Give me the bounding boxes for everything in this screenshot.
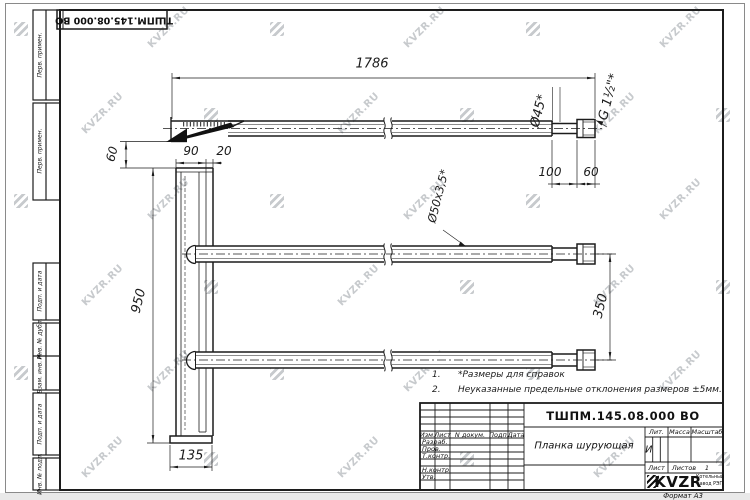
title-lit-value: И bbox=[645, 444, 652, 455]
side-label-inv-podl: Инв. № подл. bbox=[37, 453, 44, 494]
title-col-data: Дата bbox=[508, 431, 525, 439]
side-label-perv-primen-2: Перв. примен. bbox=[37, 128, 44, 173]
drawing-canvas bbox=[0, 0, 750, 500]
note-1-text: *Размеры для справок bbox=[458, 370, 565, 380]
dim-20: 20 bbox=[216, 144, 231, 158]
title-row-utv: Утв. bbox=[422, 473, 436, 481]
drawing-sheet: KVZR.RUKVZR.RUKVZR.RUKVZR.RUKVZR.RUKVZR.… bbox=[0, 0, 750, 500]
side-label-podp-data-2: Подп. и дата bbox=[37, 404, 44, 445]
title-row-tkontr: Т.контр. bbox=[422, 452, 450, 460]
title-hdr-massa: Масса bbox=[669, 428, 690, 436]
title-col-podp: Подп. bbox=[489, 431, 509, 439]
side-label-perv-primen: Перв. примен. bbox=[37, 32, 44, 77]
title-part-name: Планка шурующая bbox=[534, 441, 633, 452]
front-view bbox=[170, 168, 612, 443]
title-hdr-masshtab: Масштаб bbox=[692, 428, 723, 436]
title-sheets-label: Листов bbox=[672, 464, 696, 472]
side-label-podp-data: Подп. и дата bbox=[37, 271, 44, 312]
dim-60-right: 60 bbox=[583, 165, 598, 179]
title-hdr-lit: Лит. bbox=[649, 428, 664, 436]
org-name-line1: Котельный bbox=[696, 475, 724, 481]
dim-135: 135 bbox=[179, 449, 204, 464]
title-sheets-value: 1 bbox=[705, 464, 709, 472]
kvzr-logo-text: KVZR bbox=[654, 473, 702, 491]
note-1-number: 1. bbox=[432, 370, 441, 380]
note-2-text: Неуказанные предельные отклонения размер… bbox=[458, 385, 722, 395]
note-2-number: 2. bbox=[432, 385, 441, 395]
format-note: Формат А3 bbox=[663, 492, 703, 500]
dim-90: 90 bbox=[183, 144, 198, 158]
title-doc-number: ТШПМ.145.08.000 ВО bbox=[546, 409, 700, 423]
corner-stamp-number: ТШПМ.145.08.000 ВО bbox=[55, 14, 173, 25]
title-sheet-label: Лист bbox=[648, 464, 664, 472]
title-col-doc: N докум. bbox=[455, 431, 485, 439]
org-name-line2: завод РЭП bbox=[697, 481, 723, 487]
side-label-vzam-inv: Взам. инв. № bbox=[37, 353, 44, 394]
dim-100: 100 bbox=[539, 165, 562, 179]
dim-length-1786: 1786 bbox=[355, 57, 388, 72]
